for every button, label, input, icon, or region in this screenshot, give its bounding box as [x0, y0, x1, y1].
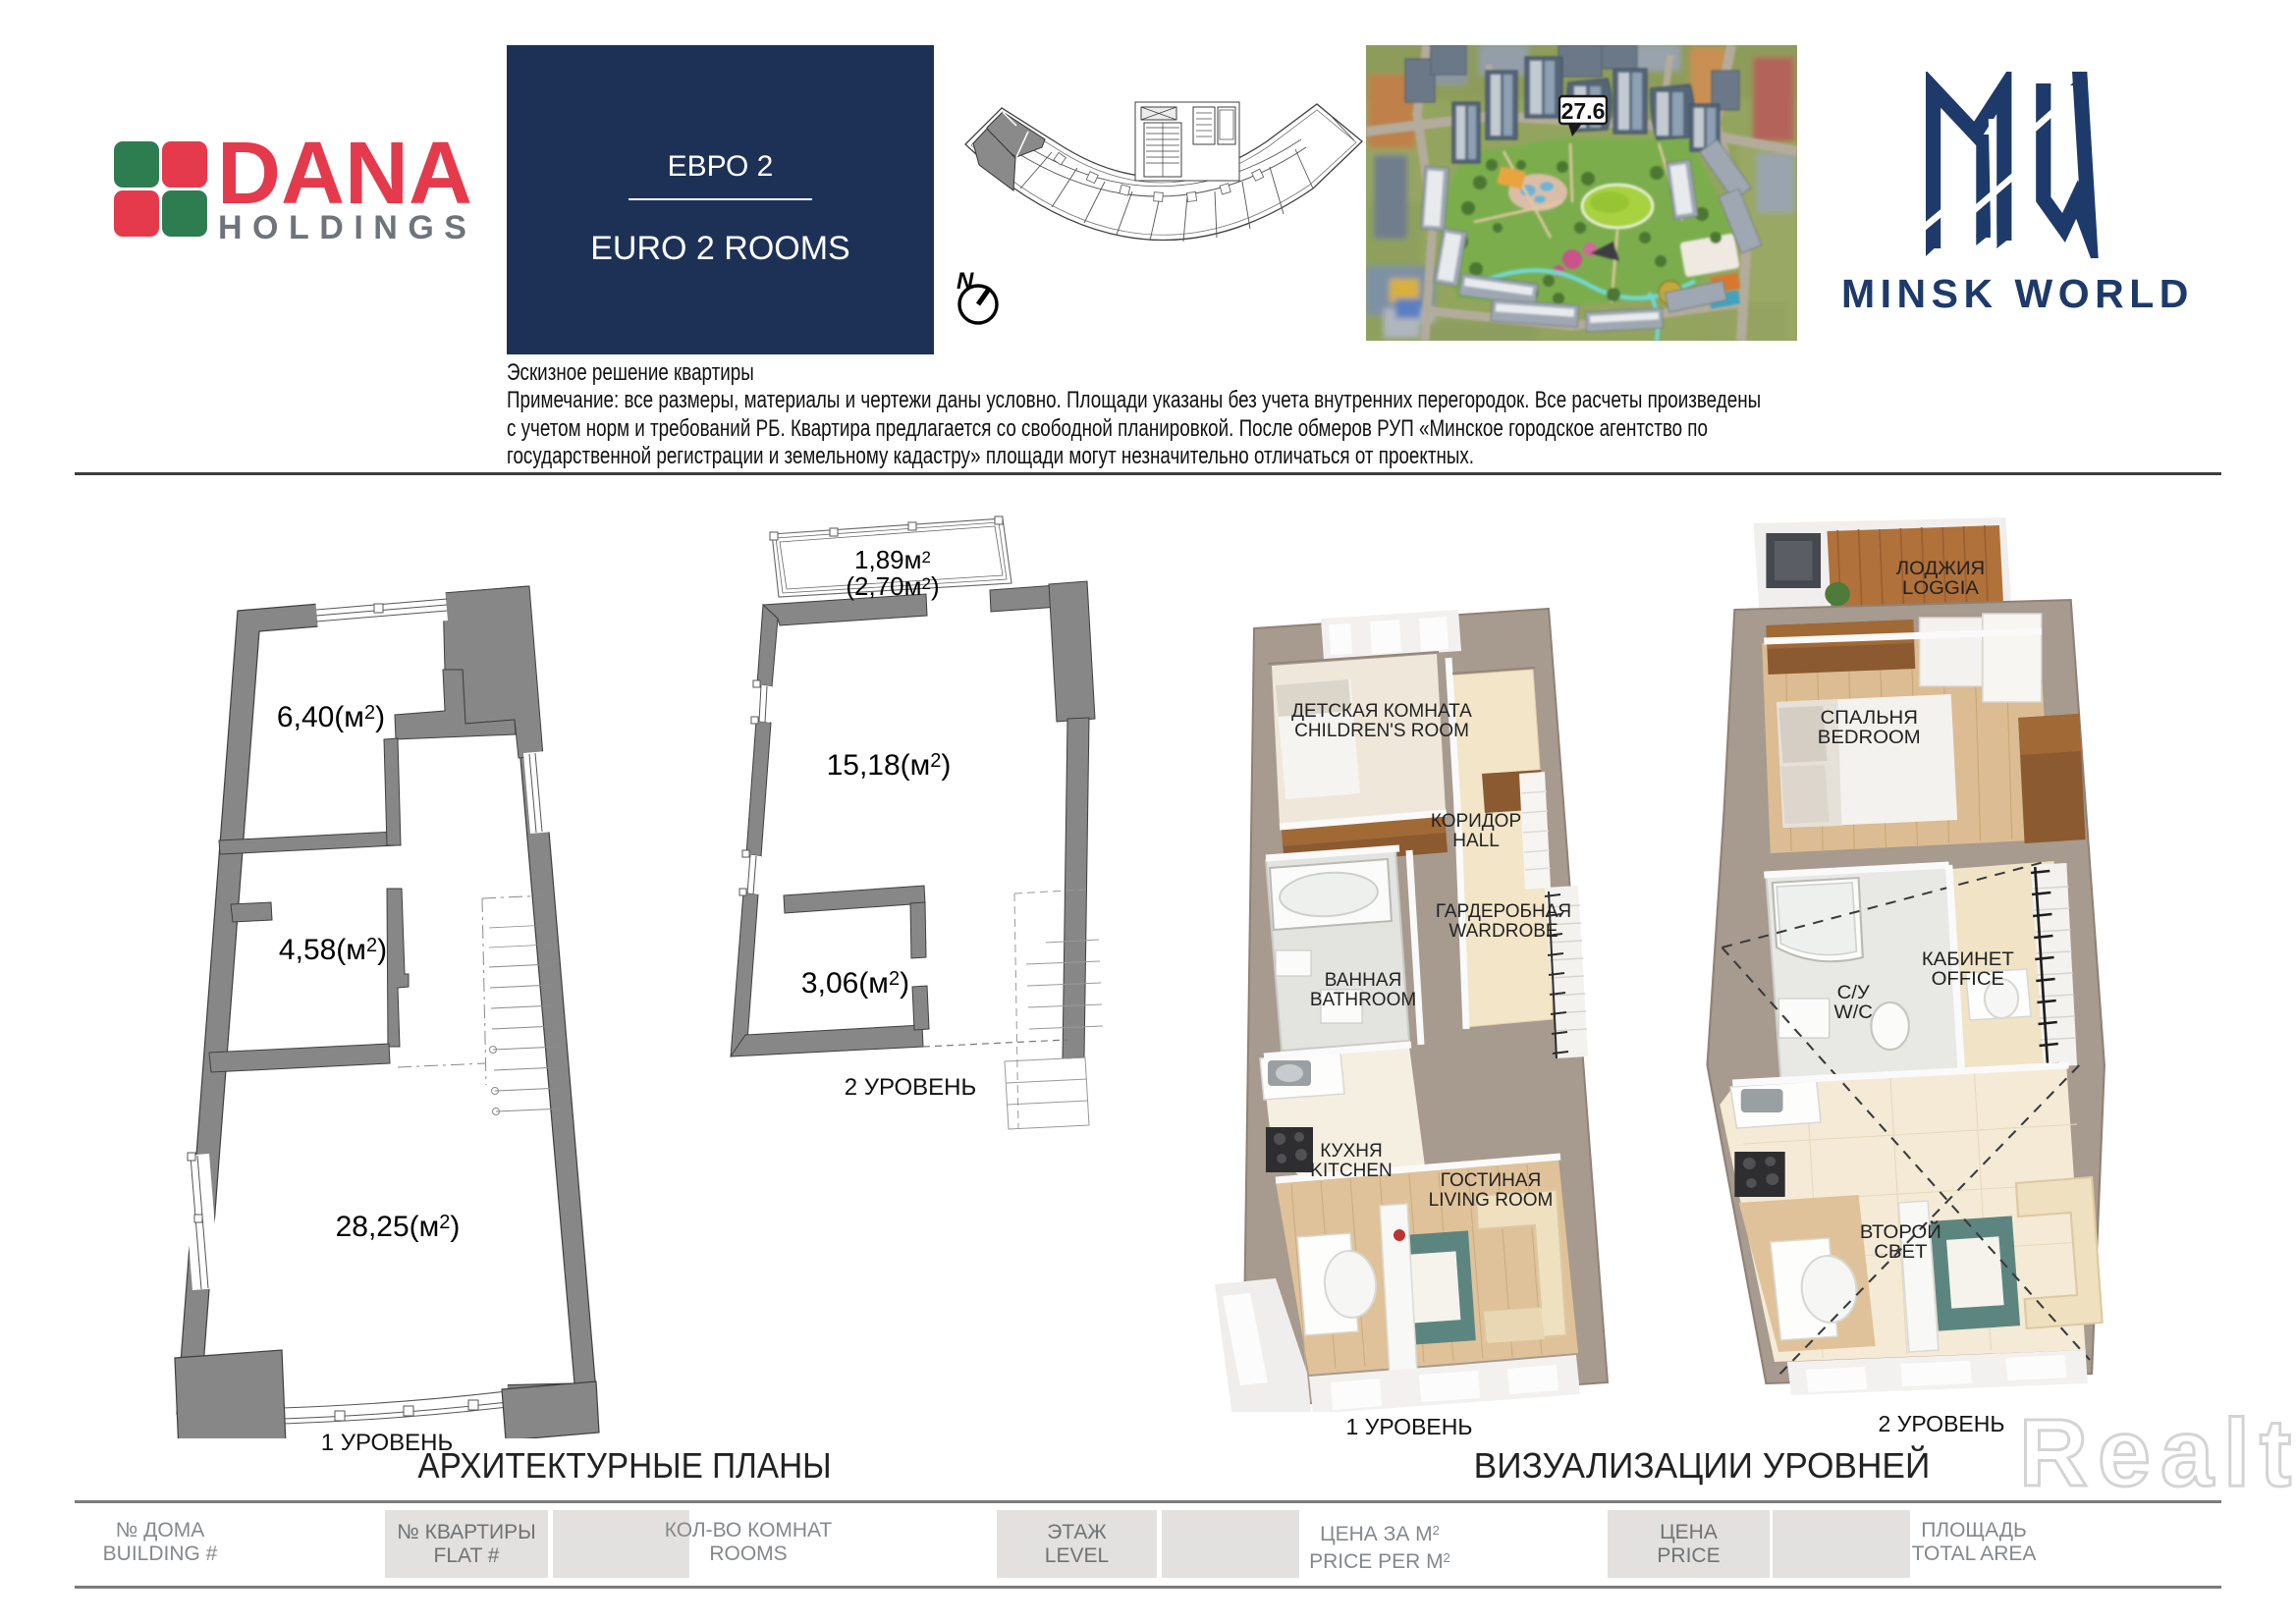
svg-text:КУХНЯ: КУХНЯ	[1320, 1141, 1382, 1162]
svg-text:LIVING ROOM: LIVING ROOM	[1429, 1190, 1554, 1211]
svg-text:OFFICE: OFFICE	[1932, 969, 2004, 990]
svg-text:ВАННАЯ: ВАННАЯ	[1325, 970, 1402, 991]
svg-text:3,06(м2): 3,06(м2)	[801, 967, 909, 1000]
svg-text:КОРИДОР: КОРИДОР	[1431, 811, 1521, 832]
svg-text:15,18(м2): 15,18(м2)	[827, 749, 952, 782]
svg-text:LOGGIA: LOGGIA	[1902, 578, 1980, 599]
svg-text:ВТОРОЙ: ВТОРОЙ	[1860, 1220, 1941, 1243]
svg-text:BEDROOM: BEDROOM	[1818, 728, 1921, 748]
svg-text:1,89м2: 1,89м2	[854, 545, 931, 574]
svg-text:С/У: С/У	[1837, 983, 1871, 1003]
svg-text:W/C: W/C	[1833, 1002, 1872, 1023]
svg-text:ЛОДЖИЯ: ЛОДЖИЯ	[1896, 559, 1985, 579]
svg-text:28,25(м2): 28,25(м2)	[336, 1211, 461, 1243]
svg-text:КАБИНЕТ: КАБИНЕТ	[1922, 949, 2014, 970]
svg-text:ГОСТИНАЯ: ГОСТИНАЯ	[1441, 1170, 1541, 1191]
svg-text:HALL: HALL	[1452, 831, 1500, 851]
svg-text:CHILDREN'S ROOM: CHILDREN'S ROOM	[1294, 721, 1469, 741]
svg-text:ГАРДЕРОБНАЯ: ГАРДЕРОБНАЯ	[1436, 901, 1571, 922]
svg-text:6,40(м2): 6,40(м2)	[277, 701, 385, 733]
svg-text:BATHROOM: BATHROOM	[1310, 990, 1416, 1010]
svg-text:KITCHEN: KITCHEN	[1310, 1161, 1392, 1181]
svg-text:СВЕТ: СВЕТ	[1874, 1242, 1927, 1263]
svg-text:4,58(м2): 4,58(м2)	[279, 934, 387, 966]
svg-text:ДЕТСКАЯ КОМНАТА: ДЕТСКАЯ КОМНАТА	[1291, 701, 1472, 722]
svg-text:27.6: 27.6	[1561, 98, 1606, 124]
svg-text:WARDROBE: WARDROBE	[1449, 921, 1558, 942]
svg-text:СПАЛЬНЯ: СПАЛЬНЯ	[1821, 708, 1918, 729]
